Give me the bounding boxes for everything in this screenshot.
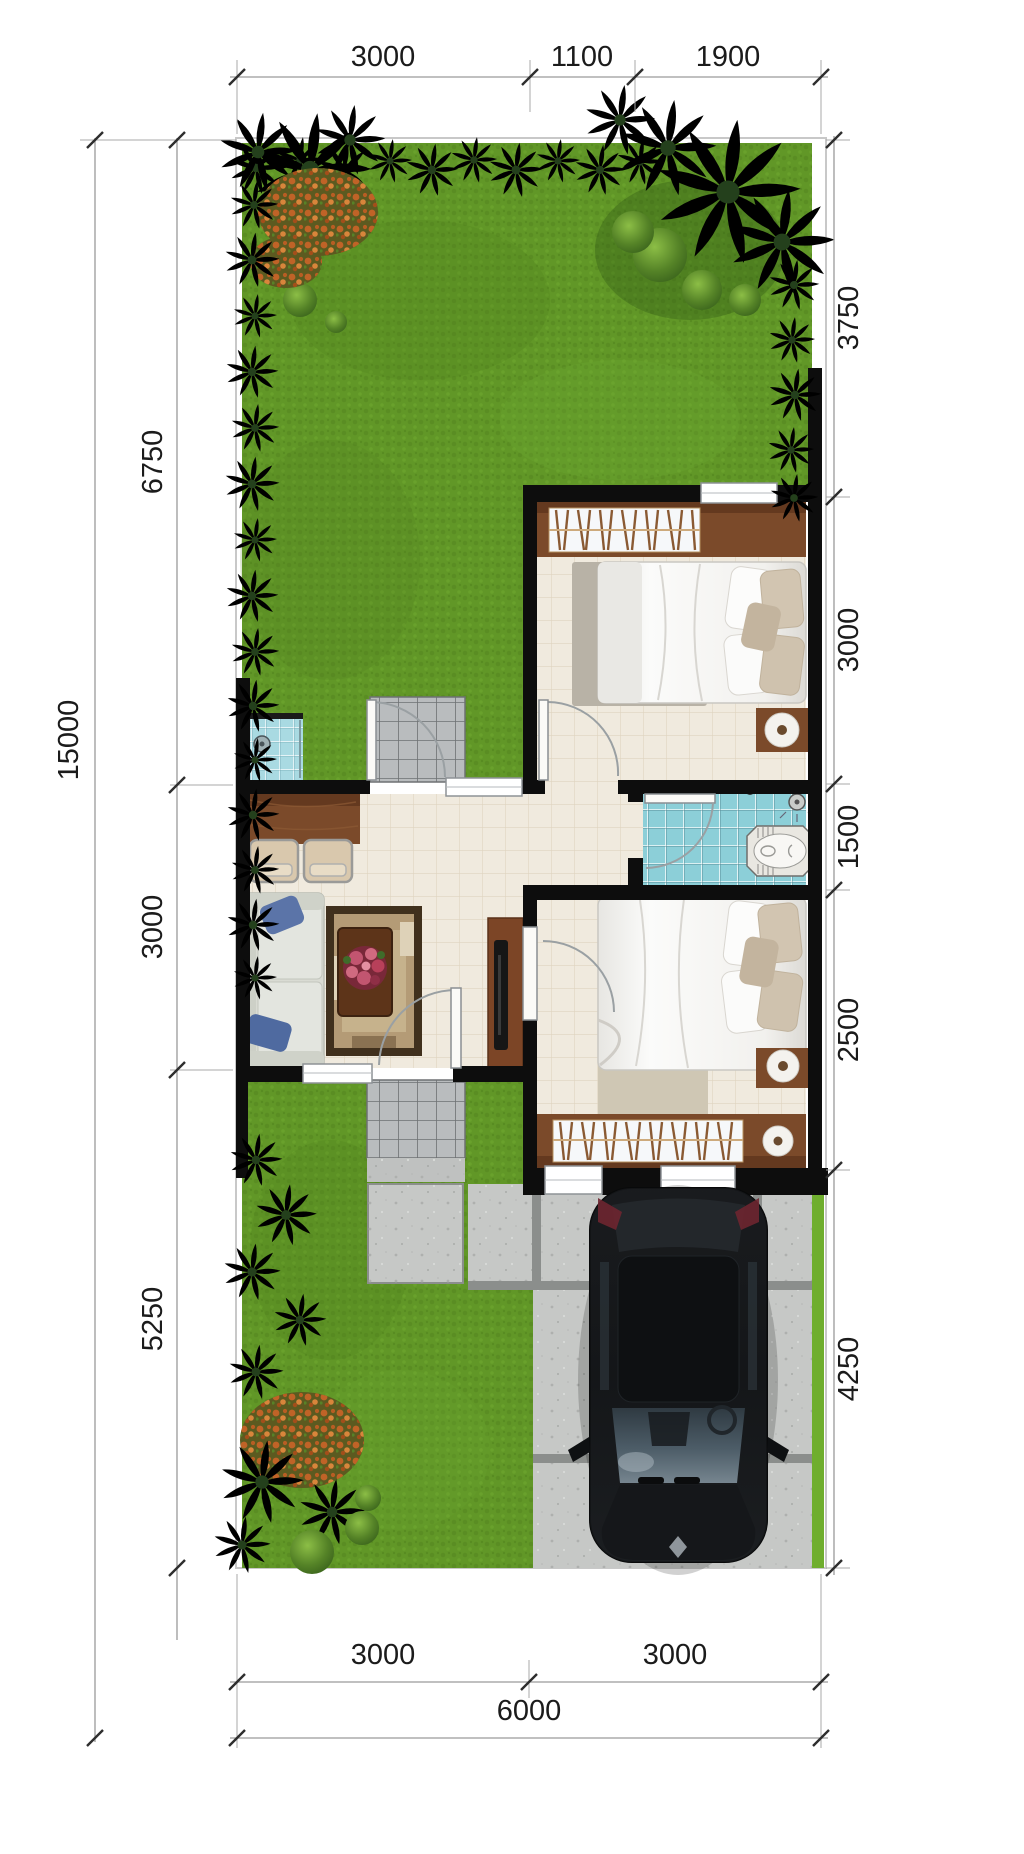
dim-top-2: 1100 <box>551 41 613 73</box>
dimension-top: 3000 1100 1900 <box>229 41 829 134</box>
bathtub <box>747 826 813 876</box>
dim-right-1: 3750 <box>833 286 865 351</box>
car-rear-window <box>612 1199 745 1253</box>
dim-bottom-1: 3000 <box>351 1639 416 1671</box>
tv-cabinet <box>488 918 523 1072</box>
dim-right-5: 4250 <box>833 1337 865 1402</box>
floor-plan-canvas: 3000 1100 1900 15000 6750 3000 5250 3750… <box>0 0 1024 1854</box>
car-roof <box>618 1256 739 1402</box>
dim-top-3: 1900 <box>696 41 761 73</box>
bush <box>345 1511 379 1545</box>
dining-chair <box>304 840 352 882</box>
car-console <box>648 1412 690 1446</box>
dim-left-3: 5250 <box>137 1287 169 1352</box>
flower-bouquet-icon <box>343 946 387 990</box>
dimension-right: 3750 3000 1500 2500 4250 <box>826 132 865 1576</box>
car-side-glass <box>748 1262 757 1390</box>
dim-top-1: 3000 <box>351 41 416 73</box>
dim-left-total: 15000 <box>53 700 85 781</box>
grass-strip-right <box>810 1195 824 1568</box>
dim-right-3: 1500 <box>833 805 865 870</box>
front-terrace <box>367 1080 465 1182</box>
wall-right <box>808 368 822 1195</box>
carport-joint-v1 <box>532 1184 541 1285</box>
bush <box>283 283 317 317</box>
side-table-bedroom1 <box>756 708 808 752</box>
wall-living-bottom-right <box>453 1066 523 1082</box>
dimension-bottom: 3000 3000 6000 <box>229 1574 829 1748</box>
side-table-bedroom2 <box>756 1048 808 1088</box>
stepping-slab <box>368 1184 463 1283</box>
wall-bedroom2-left-top <box>523 900 537 927</box>
coffee-table <box>338 928 392 1016</box>
car-side-glass <box>600 1262 609 1390</box>
outdoor-wash-area <box>245 713 303 780</box>
dim-bottom-total: 6000 <box>497 1695 562 1727</box>
floor-plan-page: 3000 1100 1900 15000 6750 3000 5250 3750… <box>0 0 1024 1854</box>
wall-bedroom1-left <box>523 485 537 782</box>
bush <box>290 1530 334 1574</box>
dim-left-2: 3000 <box>137 895 169 960</box>
wall-bath-left-top <box>628 780 643 802</box>
bush <box>325 311 347 333</box>
dim-left-1: 6750 <box>137 430 169 495</box>
dim-right-2: 3000 <box>833 608 865 673</box>
dimension-left: 15000 6750 3000 5250 <box>53 132 236 1746</box>
wall-bedroom2-bottom-a <box>523 1168 545 1195</box>
car-wiper <box>674 1477 700 1484</box>
bush <box>355 1485 381 1511</box>
wardrobe-bedroom2 <box>537 1114 806 1168</box>
rear-walkway <box>370 697 465 782</box>
wall-bath-bottom <box>523 885 808 900</box>
car <box>568 1185 789 1575</box>
wall-corner-block <box>806 1168 828 1195</box>
wall-bedroom2-left-bottom <box>523 1020 537 1168</box>
car-wiper <box>638 1477 664 1484</box>
wall-mid-right <box>618 780 808 794</box>
dim-right-4: 2500 <box>833 998 865 1063</box>
wall-bedroom2-bottom-c <box>735 1168 808 1195</box>
dim-bottom-2: 3000 <box>643 1639 708 1671</box>
